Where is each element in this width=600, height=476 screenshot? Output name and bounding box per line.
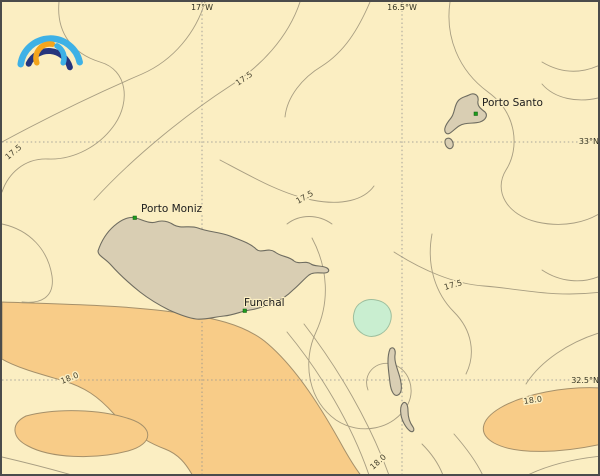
lon-label-16-5w: 16.5°W (387, 3, 417, 12)
map-window: Porto Moniz Funchal Porto Santo 17.5 17.… (0, 0, 600, 476)
lon-label-17w: 17°W (191, 3, 213, 12)
lat-label-33n: 33°N (579, 137, 599, 146)
porto-santo-islet (445, 138, 453, 148)
cool-patch (353, 300, 391, 337)
lat-label-32-5n: 32.5°N (571, 376, 599, 385)
funchal-marker (243, 309, 247, 313)
porto-santo-marker (474, 112, 478, 116)
funchal-label: Funchal (244, 297, 285, 309)
porto-santo-label: Porto Santo (482, 97, 543, 109)
porto-moniz-label: Porto Moniz (141, 203, 203, 215)
porto-moniz-marker (133, 216, 137, 220)
map-canvas: Porto Moniz Funchal Porto Santo 17.5 17.… (2, 2, 600, 476)
